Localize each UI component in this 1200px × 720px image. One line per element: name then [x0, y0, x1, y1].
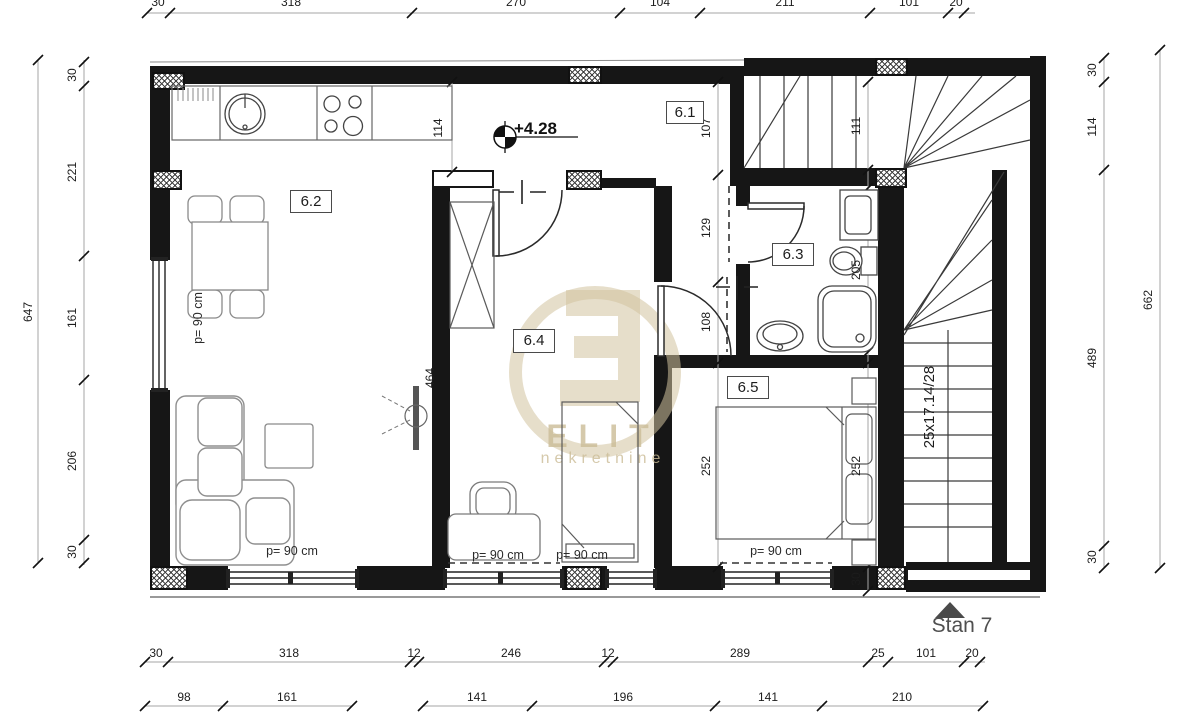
wall-stub-plastered	[432, 170, 494, 188]
dim-bottom1: 12	[586, 646, 630, 660]
dim-right: 489	[1085, 336, 1099, 380]
watermark-logo-bar	[574, 336, 618, 358]
door-room64	[493, 190, 562, 256]
room-label-6-5: 6.5	[727, 376, 769, 399]
shower	[818, 286, 876, 352]
wall-bedroom-north	[654, 355, 885, 368]
pier	[876, 566, 906, 590]
dim-bottom1: 318	[267, 646, 311, 660]
level-marker-value: +4.28	[514, 119, 584, 139]
dim-top: 104	[638, 0, 682, 9]
wall-room64-top	[600, 178, 656, 188]
parapet-label: p= 90 cm	[736, 544, 816, 558]
pier	[875, 58, 908, 76]
wall-room64-east-upper	[654, 186, 672, 282]
parapet-label: p= 90 cm	[191, 278, 205, 358]
unit-label: Stan 7	[912, 614, 1012, 638]
dim-bottom1: 20	[950, 646, 994, 660]
dim-bottom2: 196	[601, 690, 645, 704]
pier	[565, 566, 602, 590]
kitchen-sink	[225, 94, 265, 134]
dim-right: 30	[1085, 535, 1099, 579]
dim-interior: 108	[699, 300, 713, 344]
room-label-6-4: 6.4	[513, 329, 555, 353]
sill-line	[150, 596, 1040, 598]
wall-stair-west	[878, 186, 904, 566]
dim-interior: 252	[849, 444, 863, 488]
kitchen-counter	[172, 86, 452, 140]
wall-bath-west	[736, 264, 750, 360]
window-left	[151, 257, 168, 392]
dim-top: 270	[494, 0, 538, 9]
dim-interior: 129	[699, 206, 713, 250]
stairs-lower-flight	[904, 172, 1004, 562]
dim-right: 30	[1085, 48, 1099, 92]
pier	[152, 72, 185, 90]
dim-bottom2: 141	[455, 690, 499, 704]
dim-left: 206	[65, 439, 79, 483]
dim-right: 114	[1085, 105, 1099, 149]
wall-stair-bottom	[906, 580, 1046, 592]
dim-left: 161	[65, 296, 79, 340]
stair-formula: 25x17.14/28	[923, 357, 937, 457]
parapet-label: p= 90 cm	[252, 544, 332, 558]
tv	[382, 386, 427, 450]
wall-stair-bottom	[906, 562, 1046, 570]
watermark-logo-spine	[618, 290, 640, 402]
dim-top: 211	[763, 0, 807, 9]
wall-left-lower	[150, 390, 170, 568]
washing-machine	[840, 190, 878, 240]
wall-entry	[730, 66, 744, 170]
dim-bottom2: 98	[162, 690, 206, 704]
dim-bottom2: 161	[265, 690, 309, 704]
outline-top	[150, 60, 744, 62]
watermark-logo-bar	[566, 290, 618, 316]
wardrobe	[450, 202, 494, 328]
dim-bottom1: 30	[134, 646, 178, 660]
dim-top: 20	[934, 0, 978, 9]
dim-top: 101	[887, 0, 931, 9]
room-label-6-1: 6.1	[666, 101, 704, 124]
dim-interior: 464	[423, 356, 437, 400]
pier	[152, 170, 182, 190]
wall-bottom	[357, 566, 445, 590]
dim-interior: 205	[849, 248, 863, 292]
room-label-6-2: 6.2	[290, 190, 332, 213]
bathroom-sink	[757, 321, 803, 351]
pier	[568, 66, 602, 84]
dim-left: 221	[65, 150, 79, 194]
stairs-upper-flight	[744, 76, 1030, 168]
wall-bath-north	[730, 168, 880, 186]
dim-left-total: 647	[21, 290, 35, 334]
dim-bottom1: 246	[489, 646, 533, 660]
window-bottom	[226, 569, 834, 588]
watermark-logo-bar	[560, 380, 618, 406]
wall-top	[150, 66, 744, 84]
pier	[150, 566, 188, 590]
wall-stair-shaft	[992, 170, 1007, 562]
dim-bottom2: 141	[746, 690, 790, 704]
opening-axis-symbol	[498, 180, 758, 300]
coffee-table	[265, 424, 313, 468]
dim-left: 30	[65, 53, 79, 97]
dim-interior: 111	[849, 104, 863, 148]
dim-right-total: 662	[1141, 278, 1155, 322]
dim-bottom1: 101	[904, 646, 948, 660]
dim-left: 30	[65, 530, 79, 574]
dim-top: 318	[269, 0, 313, 9]
dim-bottom2: 210	[880, 690, 924, 704]
wall-right-outer	[1030, 56, 1046, 592]
wall-bottom	[655, 566, 723, 590]
dim-bottom1: 12	[392, 646, 436, 660]
dim-bottom1: 25	[856, 646, 900, 660]
sofa	[176, 396, 294, 565]
dim-interior: 114	[431, 106, 445, 150]
dim-bottom1: 289	[718, 646, 762, 660]
dim-interior: 252	[699, 444, 713, 488]
parapet-label: p= 90 cm	[458, 548, 538, 562]
parapet-label: p= 90 cm	[542, 548, 622, 562]
watermark-subtitle: nekretnine	[533, 450, 673, 468]
pier	[875, 168, 907, 188]
room-label-6-3: 6.3	[772, 243, 814, 266]
nightstand	[852, 378, 876, 404]
pier	[566, 170, 602, 190]
stove-burners	[324, 96, 363, 136]
dim-top: 30	[136, 0, 180, 9]
dim-interior: 30	[849, 557, 863, 601]
floor-plan: ELIT nekretnine	[0, 0, 1200, 720]
